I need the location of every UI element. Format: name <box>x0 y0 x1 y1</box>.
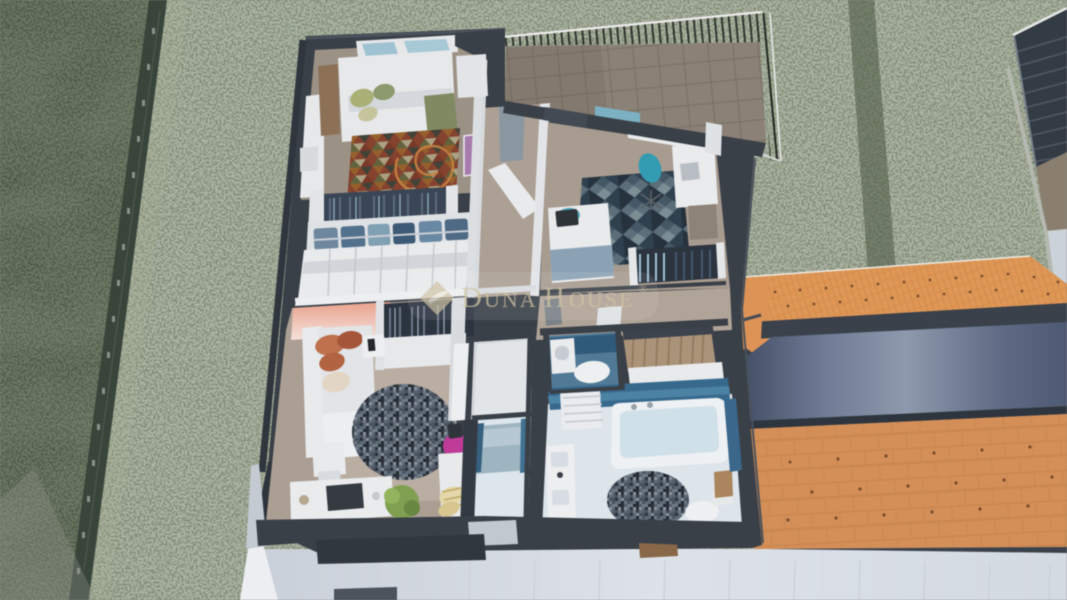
svg-text:UNA: UNA <box>484 287 538 312</box>
svg-text:D: D <box>461 282 482 314</box>
svg-text:OUSE: OUSE <box>569 287 634 312</box>
svg-text:®: ® <box>639 284 647 295</box>
svg-text:H: H <box>544 282 565 314</box>
